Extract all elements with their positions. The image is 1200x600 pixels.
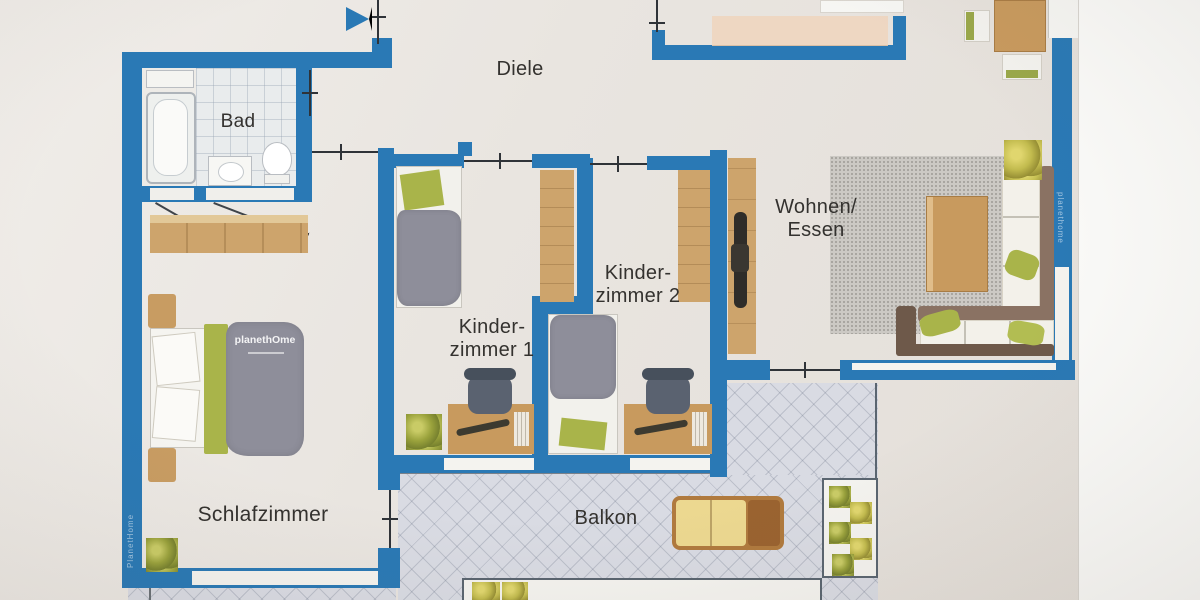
dining-chair-left	[964, 10, 990, 42]
dimension-tick-entry	[370, 16, 386, 18]
toilet-bowl	[262, 142, 292, 176]
dining-table	[994, 0, 1046, 52]
dimension-line-corridor	[312, 151, 378, 153]
kz1-chair-back	[464, 368, 516, 380]
terrace-tiles-below-bedroom	[128, 586, 396, 600]
kz1-wardrobe	[540, 170, 574, 302]
kz1-plant	[406, 414, 442, 450]
planter-plant-2	[850, 502, 872, 524]
kz1-top-wall-nub	[458, 142, 472, 156]
bedroom-wardrobe	[150, 215, 308, 253]
terrace-left-line	[149, 586, 151, 600]
diele-top-wall-upturn	[893, 16, 906, 60]
nightstand-bottom	[148, 448, 176, 482]
kz2-label: Kinder- zimmer 2	[582, 262, 694, 308]
wohnen-label: Wohnen/ Essen	[768, 196, 864, 242]
kz2-top-wall	[647, 156, 717, 170]
bed-logo-subline	[248, 352, 284, 354]
balkon-label: Balkon	[558, 507, 654, 530]
coffee-table	[926, 196, 988, 292]
kz2-chair-back	[642, 368, 694, 380]
diele-top-wall	[652, 45, 895, 60]
sofa-bottom-frame	[896, 344, 1054, 356]
living-corner-plant	[1004, 140, 1042, 180]
dining-chair-bottom	[1002, 54, 1042, 80]
planter-plant-3	[829, 522, 851, 544]
bathroom-top-wall-nub	[372, 38, 392, 54]
kz2-label-line2: zimmer 2	[596, 285, 681, 307]
kz1-bed-green-blanket	[400, 169, 445, 210]
right-wall-watermark: planethome	[1056, 192, 1065, 262]
tv-center	[731, 244, 749, 272]
kz1-window	[444, 455, 534, 473]
dimension-tick-bad	[302, 92, 318, 94]
kz1-label-line1: Kinder-	[459, 316, 526, 338]
top-right-window-gap	[1048, 0, 1078, 38]
dimension-tick-kz1-door	[499, 153, 501, 169]
bathroom-door-opening-1	[150, 188, 194, 200]
kz2-desk-papers	[692, 412, 707, 446]
dimension-tick-balcony-door-schlaf	[382, 518, 398, 520]
bed-green-runner	[204, 324, 228, 454]
dimension-line-kz1-door	[464, 160, 532, 162]
diele-top-wall-stub	[652, 30, 665, 45]
wohnen-bottom-wall-left	[727, 360, 770, 380]
sun-lounger-backrest	[748, 500, 780, 546]
kz2-chair	[646, 376, 690, 414]
bedroom-plant	[146, 538, 178, 572]
floorplan: planethOme PlanetHome Kinder- zimmer 1 K…	[0, 0, 1200, 600]
bathtub-basin	[153, 99, 188, 176]
sofa-right-back	[1040, 166, 1054, 322]
kz2-bed-green-blanket	[559, 418, 608, 451]
bed-logo-watermark: planethOme	[226, 334, 304, 346]
balcony-planter-bottom	[462, 578, 822, 600]
dining-chair-bottom-back	[1006, 70, 1038, 78]
kz1-label: Kinder- zimmer 1	[432, 316, 552, 362]
bad-label: Bad	[206, 110, 270, 133]
paper-edge-strip	[1078, 0, 1200, 600]
dimension-line-top	[656, 0, 658, 32]
left-wall-watermark: PlanetHome	[126, 468, 135, 568]
sofa-right-cushions	[1002, 168, 1040, 316]
bed-pillow-1	[152, 332, 201, 386]
bathroom-cabinet	[146, 70, 194, 88]
balcony-top-outline	[398, 473, 712, 474]
dimension-tick-kz2-door	[617, 156, 619, 172]
kz2-window	[630, 455, 712, 473]
kz1-desk-papers	[514, 412, 529, 446]
wardrobe-top-band	[150, 215, 308, 223]
entrance-arrow-icon	[346, 7, 372, 31]
kitchen-island-cutoff	[820, 0, 904, 13]
toilet	[260, 142, 294, 186]
kz1-chair	[468, 376, 512, 414]
dimension-tick-balcony-door-wohnen	[804, 362, 806, 378]
bottom-planter-plant-1	[472, 582, 500, 600]
sofa-armrest	[896, 306, 916, 356]
nightstand-top	[148, 294, 176, 328]
dimension-tick-top	[649, 22, 665, 24]
planter-plant-5	[832, 554, 854, 576]
coffee-table-edge	[927, 197, 933, 291]
bathroom-door-opening-2	[206, 188, 294, 200]
bottom-planter-plant-2	[502, 582, 528, 600]
bathroom-sink	[208, 156, 252, 186]
kz2-bed-duvet	[550, 315, 616, 399]
diele-label: Diele	[470, 58, 570, 81]
balcony-left-wall-lower	[378, 548, 400, 588]
wohnen-label-line1: Wohnen/	[775, 196, 857, 218]
wohnen-label-line2: Essen	[787, 219, 844, 241]
kz2-label-line1: Kinder-	[605, 262, 672, 284]
kz1-left-wall	[378, 148, 394, 455]
kz1-bed-duvet	[397, 210, 461, 306]
kitchen-counter-cutoff	[712, 16, 888, 46]
balcony-left-wall-upper	[378, 455, 400, 490]
kz1-desk-object	[456, 418, 510, 436]
planter-plant-1	[829, 486, 851, 508]
sun-lounger	[672, 496, 784, 550]
dimension-tick-corridor	[340, 144, 342, 160]
sink-bowl	[218, 162, 244, 182]
dining-chair-left-back	[966, 12, 974, 40]
bathroom-top-wall	[122, 52, 392, 68]
kz1-label-line2: zimmer 1	[450, 339, 535, 361]
schlafzimmer-label: Schlafzimmer	[158, 503, 368, 526]
bed-pillow-2	[152, 386, 200, 442]
balcony-edge-line	[875, 383, 877, 480]
wohnen-left-wall	[710, 150, 727, 477]
balcony-planter-right	[822, 478, 878, 578]
toilet-tank	[264, 174, 290, 184]
dimension-line-entry	[377, 0, 379, 44]
balcony-floor-tiles-upper	[727, 383, 878, 475]
wohnen-window-band	[852, 363, 1056, 370]
kz2-desk-object	[634, 419, 688, 435]
sun-lounger-pad	[676, 500, 746, 546]
bathtub	[146, 92, 196, 184]
bedroom-window	[192, 568, 378, 588]
right-wall-window	[1052, 267, 1072, 360]
